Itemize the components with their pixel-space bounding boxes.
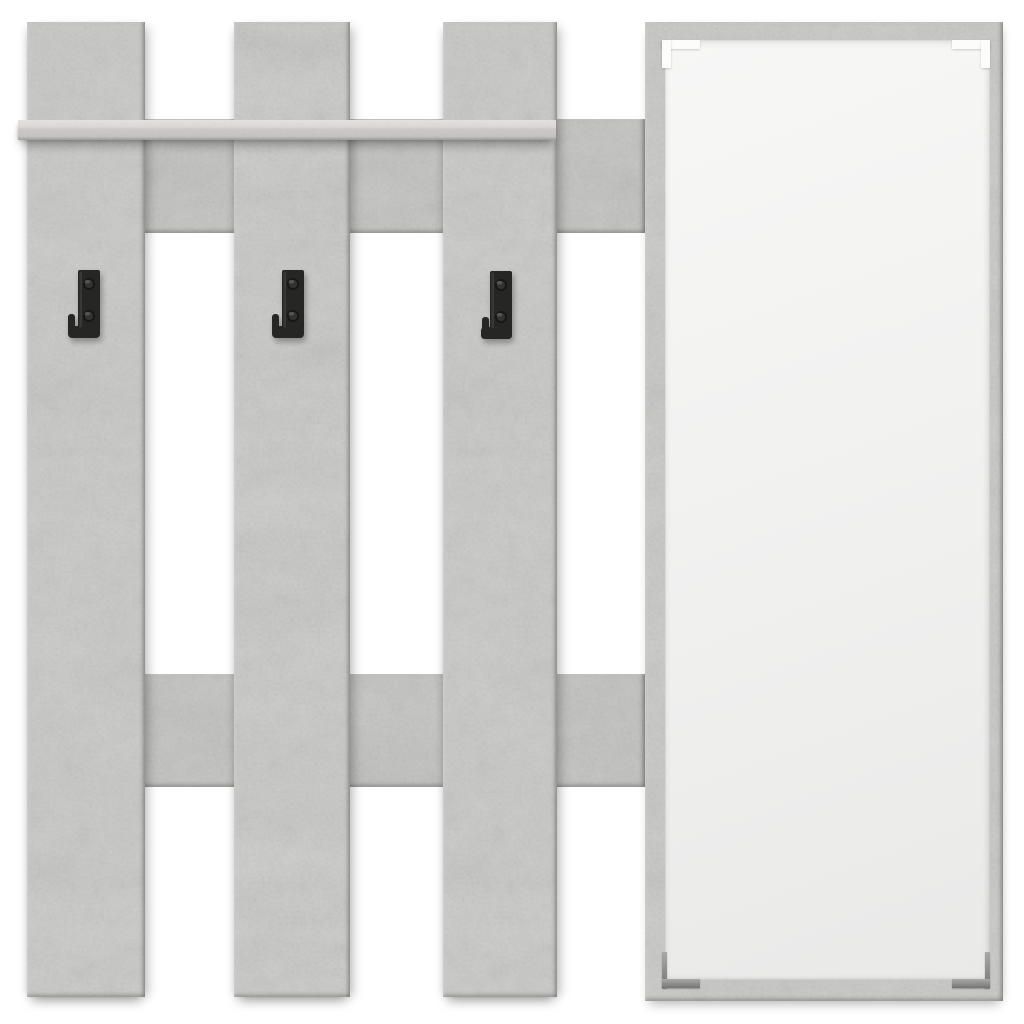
clip-horizontal-bar (952, 979, 990, 988)
product-photo (0, 0, 1024, 1024)
middle-plank (234, 22, 350, 997)
coat-hook-right (480, 271, 514, 343)
mirror-glass (665, 40, 990, 980)
shelf (18, 120, 556, 140)
clip-horizontal-bar (662, 979, 700, 988)
coat-hook-middle (272, 270, 306, 342)
left-plank (27, 22, 145, 997)
mirror-clip-top-right (952, 40, 990, 68)
clip-vertical-bar (662, 40, 671, 68)
clip-vertical-bar (981, 40, 990, 68)
mirror-clip-bottom-right (952, 952, 990, 988)
coat-hook-left (68, 270, 102, 342)
right-plank (443, 22, 557, 997)
mirror-clip-bottom-left (662, 952, 700, 988)
mirror-clip-top-left (662, 40, 700, 68)
